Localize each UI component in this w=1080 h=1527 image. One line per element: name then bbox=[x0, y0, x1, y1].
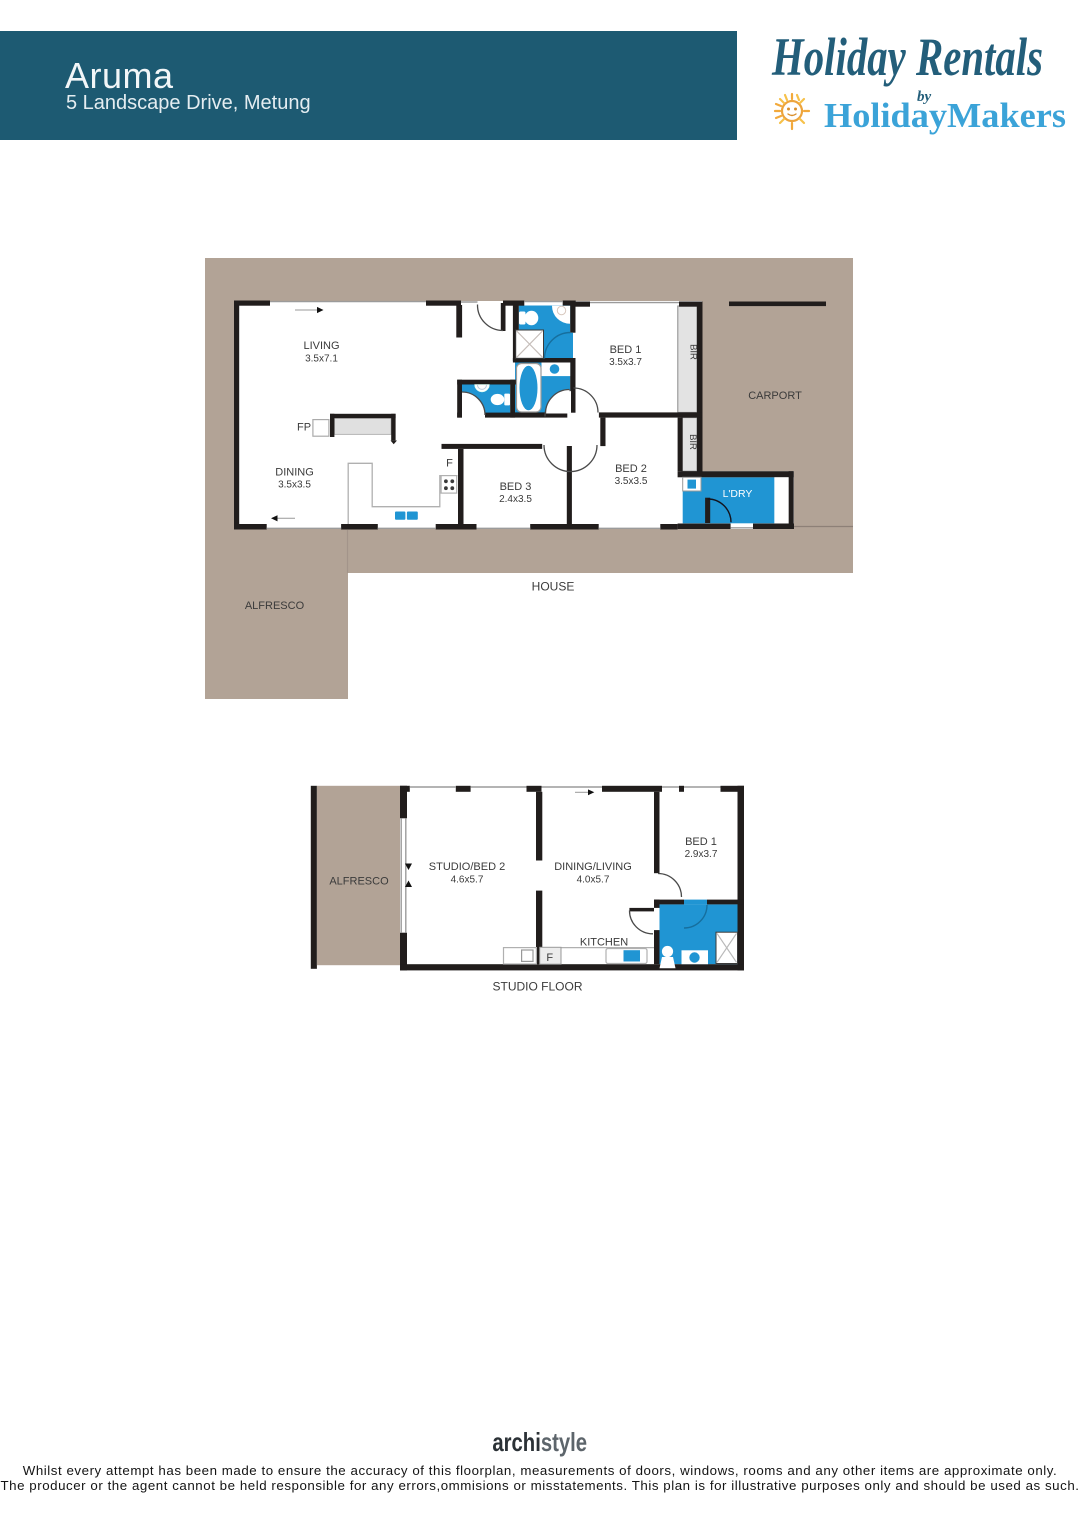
svg-text:STUDIO FLOOR: STUDIO FLOOR bbox=[492, 980, 582, 994]
svg-text:4.6x5.7: 4.6x5.7 bbox=[451, 875, 484, 886]
svg-text:F: F bbox=[546, 952, 553, 964]
svg-text:2.9x3.7: 2.9x3.7 bbox=[685, 849, 718, 860]
svg-text:FP: FP bbox=[297, 422, 311, 434]
svg-text:BED 1: BED 1 bbox=[685, 836, 717, 848]
svg-text:STUDIO/BED 2: STUDIO/BED 2 bbox=[429, 861, 505, 873]
svg-text:DINING/LIVING: DINING/LIVING bbox=[554, 861, 632, 873]
svg-text:3.5x3.5: 3.5x3.5 bbox=[615, 476, 648, 487]
svg-text:BED 3: BED 3 bbox=[500, 481, 532, 493]
svg-text:2.4x3.5: 2.4x3.5 bbox=[499, 494, 532, 505]
svg-text:BED 2: BED 2 bbox=[615, 463, 647, 475]
svg-text:CARPORT: CARPORT bbox=[748, 390, 802, 402]
svg-text:3.5x7.1: 3.5x7.1 bbox=[305, 354, 338, 365]
svg-text:BED 1: BED 1 bbox=[610, 344, 642, 356]
svg-text:KITCHEN: KITCHEN bbox=[580, 937, 628, 949]
svg-text:F: F bbox=[446, 458, 453, 470]
svg-text:3.5x3.5: 3.5x3.5 bbox=[278, 480, 311, 491]
svg-text:L'DRY: L'DRY bbox=[723, 488, 753, 500]
svg-text:BIR: BIR bbox=[688, 344, 699, 360]
svg-text:4.0x5.7: 4.0x5.7 bbox=[577, 875, 610, 886]
svg-text:3.5x3.7: 3.5x3.7 bbox=[609, 357, 642, 368]
svg-text:LIVING: LIVING bbox=[303, 340, 339, 352]
svg-text:BIR: BIR bbox=[687, 434, 698, 450]
svg-text:ALFRESCO: ALFRESCO bbox=[329, 876, 389, 888]
svg-text:ALFRESCO: ALFRESCO bbox=[245, 600, 305, 612]
svg-text:DINING: DINING bbox=[275, 467, 314, 479]
svg-text:HOUSE: HOUSE bbox=[532, 580, 575, 594]
